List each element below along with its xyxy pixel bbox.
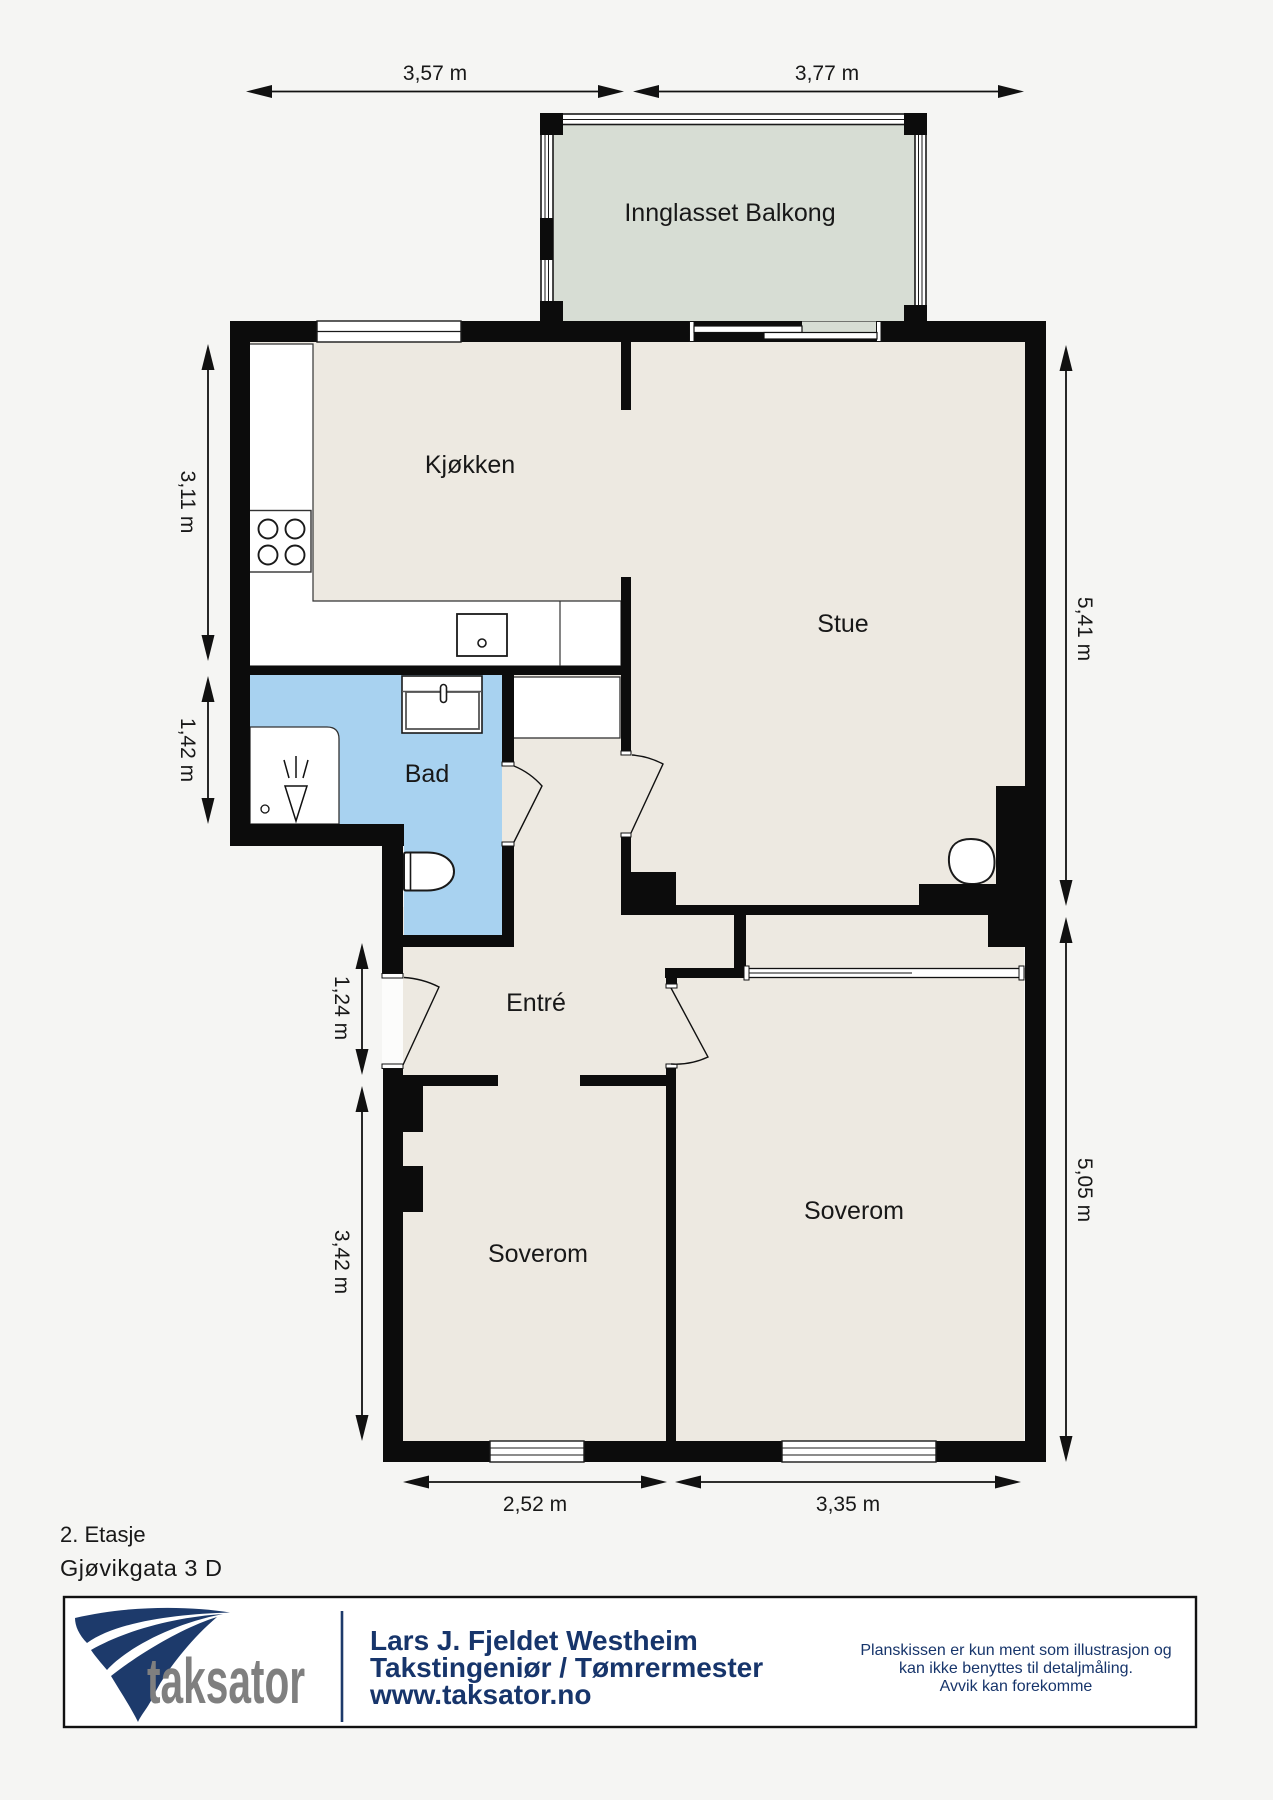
svg-text:Soverom: Soverom (804, 1197, 904, 1225)
svg-text:kan ikke benyttes til detaljmå: kan ikke benyttes til detaljmåling. (899, 1659, 1133, 1677)
svg-text:1,42 m: 1,42 m (176, 718, 199, 782)
svg-text:Gjøvikgata 3 D: Gjøvikgata 3 D (60, 1555, 222, 1581)
svg-text:3,57 m: 3,57 m (403, 62, 467, 85)
svg-text:3,11 m: 3,11 m (176, 471, 199, 534)
svg-text:3,35 m: 3,35 m (816, 1493, 880, 1516)
svg-text:Entré: Entré (506, 989, 566, 1017)
svg-text:Avvik kan forekomme: Avvik kan forekomme (940, 1678, 1093, 1695)
svg-text:Innglasset Balkong: Innglasset Balkong (624, 199, 835, 227)
svg-text:Bad: Bad (405, 760, 449, 788)
svg-text:www.taksator.no: www.taksator.no (369, 1679, 591, 1710)
svg-text:Planskissen er kun ment som il: Planskissen er kun ment som illustrasjon… (860, 1642, 1171, 1659)
svg-text:Kjøkken: Kjøkken (425, 451, 515, 479)
svg-text:Soverom: Soverom (488, 1240, 588, 1268)
svg-text:1,24 m: 1,24 m (330, 976, 353, 1040)
svg-text:3,42 m: 3,42 m (330, 1230, 353, 1294)
svg-text:Stue: Stue (817, 610, 868, 638)
svg-text:2,52 m: 2,52 m (503, 1493, 567, 1516)
svg-text:5,05 m: 5,05 m (1073, 1158, 1096, 1222)
svg-text:2. Etasje: 2. Etasje (60, 1522, 146, 1547)
svg-text:3,77 m: 3,77 m (795, 62, 859, 85)
svg-text:taksator: taksator (147, 1646, 305, 1718)
svg-text:5,41 m: 5,41 m (1073, 597, 1096, 661)
